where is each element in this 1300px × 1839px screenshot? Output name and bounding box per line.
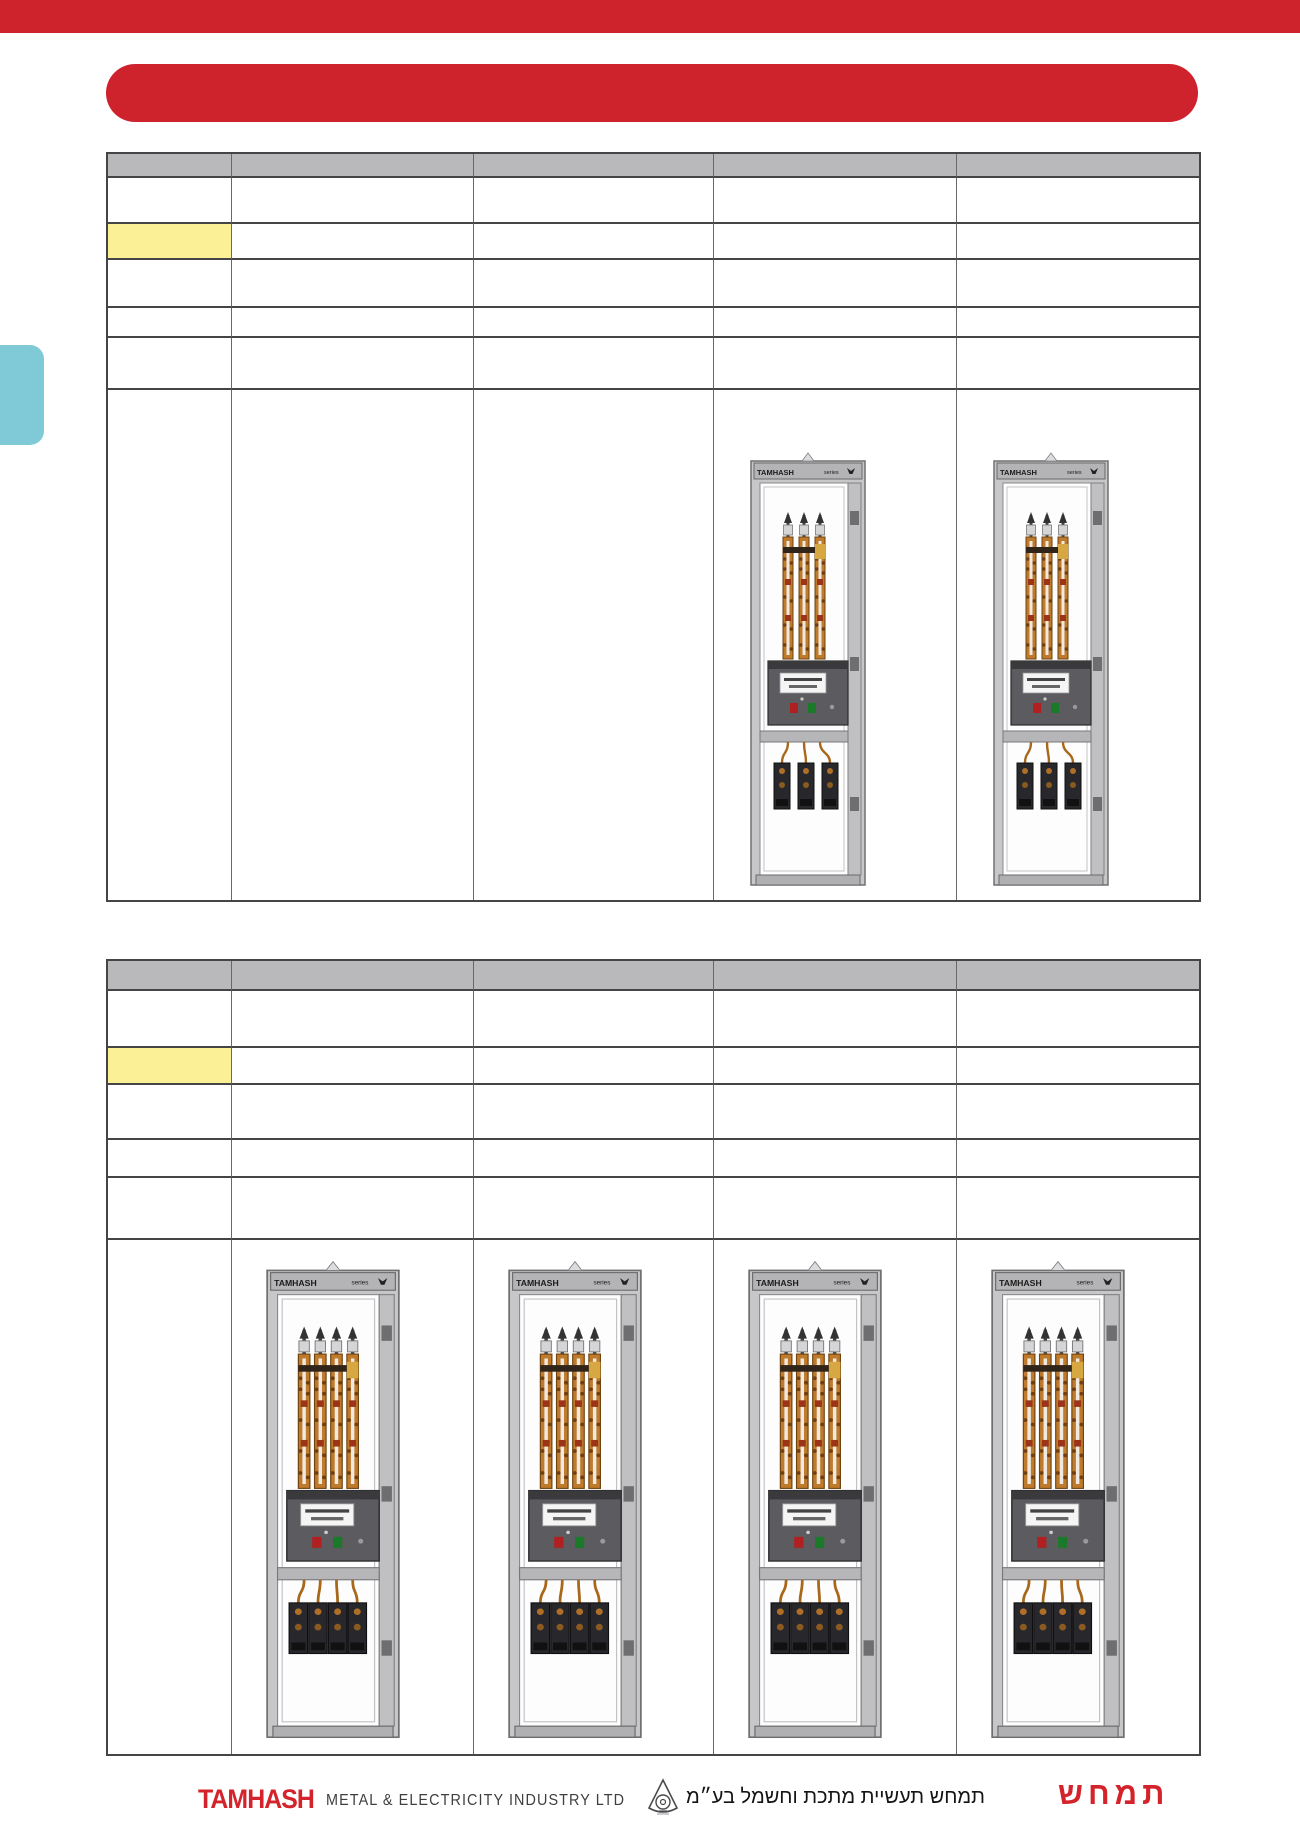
company-name-en: METAL & ELECTRICITY INDUSTRY LTD <box>326 1792 625 1810</box>
table-header-cell <box>957 154 1199 178</box>
highlighted-cell <box>108 224 232 260</box>
table-cell <box>108 338 232 390</box>
table-cell <box>108 390 232 900</box>
table-cell <box>232 338 474 390</box>
fuse-row <box>771 1603 848 1654</box>
cabinet-illustration: TAMHASHseries <box>991 1255 1125 1746</box>
table-cell <box>474 178 714 224</box>
table-cell <box>957 1178 1199 1240</box>
circuit-breaker <box>529 1491 621 1561</box>
catalog-page: TAMHASHseriesTAMHASHseriesTAMHASHseriesT… <box>0 0 1300 1839</box>
table-header-cell <box>474 961 714 991</box>
fuse-row <box>531 1603 608 1654</box>
table-cell <box>108 991 232 1048</box>
table-cell <box>474 224 714 260</box>
table-cell <box>232 1140 474 1178</box>
cabinet-brand-label: TAMHASH <box>274 1278 317 1288</box>
table-cell <box>714 224 957 260</box>
table-cell <box>957 224 1199 260</box>
title-banner <box>106 64 1198 122</box>
table-cell <box>232 1048 474 1085</box>
busbars <box>1026 512 1068 659</box>
table-cell <box>108 178 232 224</box>
table-cell <box>232 991 474 1048</box>
cabinet-illustration: TAMHASHseries <box>508 1255 642 1746</box>
table-cell <box>232 260 474 308</box>
certification-emblem-icon <box>645 1778 681 1823</box>
table-cell <box>108 308 232 338</box>
circuit-breaker <box>287 1491 379 1561</box>
cabinet-series-label: series <box>833 1280 850 1287</box>
table-cell <box>714 308 957 338</box>
busbars <box>783 512 825 659</box>
table-cell <box>474 1178 714 1240</box>
cabinet-brand-label: TAMHASH <box>999 1278 1042 1288</box>
table-header-cell <box>232 961 474 991</box>
table-cell <box>957 338 1199 390</box>
table-header-cell <box>232 154 474 178</box>
table-cell <box>957 260 1199 308</box>
table-header-cell <box>474 154 714 178</box>
table-cell <box>474 1140 714 1178</box>
cabinet-series-label: series <box>593 1280 610 1287</box>
table-cell <box>232 1085 474 1140</box>
table-cell <box>232 308 474 338</box>
cabinet-series-label: series <box>1067 470 1082 476</box>
table-cell <box>714 991 957 1048</box>
cabinet-series-label: series <box>824 470 839 476</box>
circuit-breaker <box>768 661 848 725</box>
footer: TAMHASH METAL & ELECTRICITY INDUSTRY LTD… <box>0 1770 1300 1830</box>
fuse-row <box>289 1603 366 1654</box>
cabinet-brand-label: TAMHASH <box>516 1278 559 1288</box>
table-cell <box>474 308 714 338</box>
table-cell <box>714 338 957 390</box>
table-cell <box>232 390 474 900</box>
tamhash-logo-en: TAMHASH <box>198 1784 314 1815</box>
table-cell <box>232 224 474 260</box>
cabinet-illustration: TAMHASHseries <box>748 1255 882 1746</box>
table-cell <box>474 1085 714 1140</box>
table-cell <box>474 1048 714 1085</box>
table-header-cell <box>957 961 1199 991</box>
circuit-breaker <box>769 1491 861 1561</box>
table-cell <box>714 1178 957 1240</box>
table-header-cell <box>714 961 957 991</box>
cabinet-brand-label: TAMHASH <box>757 468 794 477</box>
table-cell <box>957 308 1199 338</box>
table-cell <box>957 1085 1199 1140</box>
table-cell <box>108 1140 232 1178</box>
highlighted-cell <box>108 1048 232 1085</box>
table-cell <box>108 260 232 308</box>
table-header-cell <box>108 961 232 991</box>
table-header-cell <box>714 154 957 178</box>
company-name-he: תמחש תעשיית מתכת וחשמל בע״מ <box>690 1786 985 1809</box>
table-cell <box>232 1178 474 1240</box>
table-cell <box>714 260 957 308</box>
table-cell <box>714 1085 957 1140</box>
table-cell <box>474 390 714 900</box>
table-cell <box>957 991 1199 1048</box>
table-cell <box>108 1178 232 1240</box>
table-cell <box>714 178 957 224</box>
page-index-tab <box>0 345 44 445</box>
table-cell <box>714 1048 957 1085</box>
table-cell <box>957 1048 1199 1085</box>
fuse-row <box>1014 1603 1091 1654</box>
table-cell <box>108 1240 232 1754</box>
cabinet-brand-label: TAMHASH <box>1000 468 1037 477</box>
cabinet-illustration: TAMHASHseries <box>993 447 1109 893</box>
table-cell <box>232 178 474 224</box>
table-header-cell <box>108 154 232 178</box>
table-cell <box>714 1140 957 1178</box>
cabinet-brand-label: TAMHASH <box>756 1278 799 1288</box>
circuit-breaker <box>1011 661 1091 725</box>
fuse-row <box>774 763 838 809</box>
table-cell <box>474 991 714 1048</box>
table-cell <box>474 338 714 390</box>
fuse-row <box>1017 763 1081 809</box>
table-cell <box>957 1140 1199 1178</box>
circuit-breaker <box>1012 1491 1104 1561</box>
cabinet-illustration: TAMHASHseries <box>266 1255 400 1746</box>
tamhash-logo-he: תמחש <box>1058 1776 1169 1812</box>
cabinet-illustration: TAMHASHseries <box>750 447 866 893</box>
table-cell <box>108 1085 232 1140</box>
cabinet-series-label: series <box>351 1280 368 1287</box>
cabinet-series-label: series <box>1076 1280 1093 1287</box>
table-cell <box>474 260 714 308</box>
top-red-strip <box>0 0 1300 33</box>
table-cell <box>957 178 1199 224</box>
